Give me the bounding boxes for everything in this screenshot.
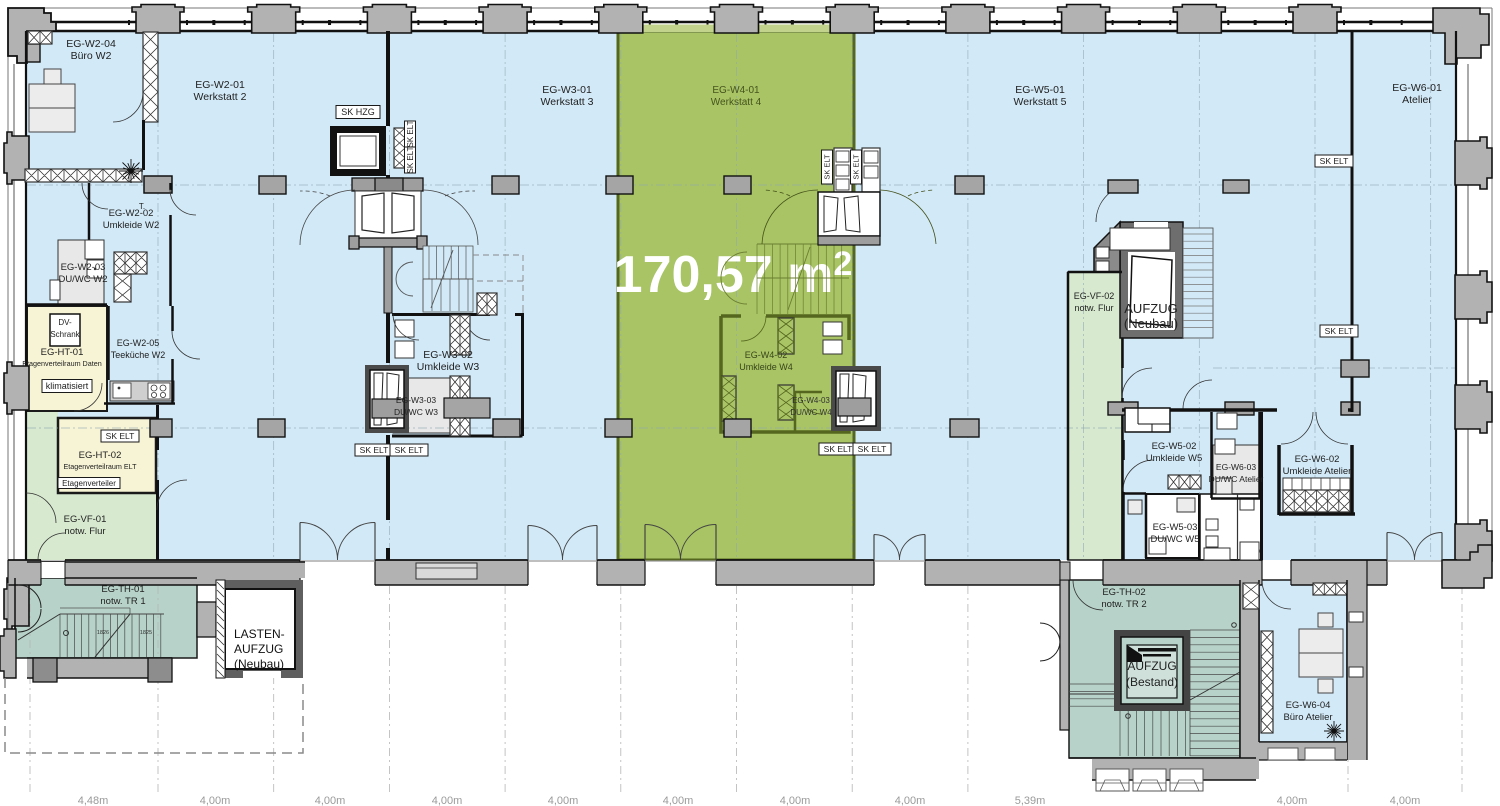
svg-text:SK ELT: SK ELT <box>852 154 861 180</box>
svg-text:SK ELT: SK ELT <box>858 444 887 454</box>
svg-text:EG-W6-01: EG-W6-01 <box>1392 82 1442 94</box>
svg-text:EG-W6-04: EG-W6-04 <box>1286 700 1331 711</box>
svg-text:EG-HT-01: EG-HT-01 <box>41 347 84 358</box>
svg-text:Umkleide W5: Umkleide W5 <box>1146 453 1203 464</box>
svg-text:SK ELT: SK ELT <box>824 444 853 454</box>
svg-text:(Bestand): (Bestand) <box>1126 675 1178 689</box>
svg-text:SK HZG: SK HZG <box>341 107 375 117</box>
svg-text:EG-W2-04: EG-W2-04 <box>66 38 116 50</box>
svg-text:notw. TR 1: notw. TR 1 <box>100 596 145 607</box>
svg-text:EG-W4-02: EG-W4-02 <box>745 350 788 360</box>
svg-text:4,00m: 4,00m <box>663 795 694 806</box>
svg-text:DU/WC W4: DU/WC W4 <box>790 408 832 417</box>
svg-text:AUFZUG: AUFZUG <box>1127 659 1176 673</box>
svg-text:klimatisiert: klimatisiert <box>46 381 89 391</box>
svg-text:SK ELT: SK ELT <box>823 154 832 180</box>
svg-text:4,00m: 4,00m <box>895 795 926 806</box>
svg-text:EG-W2-05: EG-W2-05 <box>117 338 160 348</box>
svg-text:EG-HT-02: EG-HT-02 <box>79 450 122 461</box>
svg-text:Büro W2: Büro W2 <box>71 50 112 62</box>
svg-text:DU/WC Atelier: DU/WC Atelier <box>1209 474 1264 484</box>
svg-text:Umkleide Atelier: Umkleide Atelier <box>1283 466 1352 477</box>
svg-text:Etagenverteilraum ELT: Etagenverteilraum ELT <box>64 462 138 471</box>
svg-text:EG-VF-01: EG-VF-01 <box>64 514 107 525</box>
svg-text:Etagenverteilraum Daten: Etagenverteilraum Daten <box>22 359 102 368</box>
svg-text:Werkstatt 3: Werkstatt 3 <box>541 96 594 108</box>
svg-text:1825: 1825 <box>140 630 152 636</box>
svg-text:DU/WC W2: DU/WC W2 <box>58 274 107 285</box>
svg-text:SK ELT: SK ELT <box>406 120 415 147</box>
svg-text:EG-W3-02: EG-W3-02 <box>423 349 473 361</box>
svg-text:EG-W3-03: EG-W3-03 <box>396 395 436 405</box>
svg-text:EG-W2-01: EG-W2-01 <box>195 79 245 91</box>
svg-text:4,00m: 4,00m <box>780 795 811 806</box>
svg-text:notw. Flur: notw. Flur <box>64 526 105 537</box>
svg-text:4,00m: 4,00m <box>315 795 346 806</box>
svg-text:EG-W5-03: EG-W5-03 <box>1153 522 1198 533</box>
svg-text:EG-W5-01: EG-W5-01 <box>1015 84 1065 96</box>
svg-text:AUFZUG: AUFZUG <box>1124 301 1177 316</box>
svg-text:Werkstatt 2: Werkstatt 2 <box>194 91 247 103</box>
svg-text:DV-: DV- <box>58 318 72 327</box>
svg-text:EG-W4-03: EG-W4-03 <box>792 396 830 405</box>
svg-text:EG-W2-02: EG-W2-02 <box>109 208 154 219</box>
svg-text:DU/WC W5: DU/WC W5 <box>1150 534 1199 545</box>
svg-text:SK ELT: SK ELT <box>360 445 389 455</box>
svg-text:SK ELT: SK ELT <box>395 445 424 455</box>
svg-text:Atelier: Atelier <box>1402 94 1432 106</box>
svg-text:Büro Atelier: Büro Atelier <box>1283 712 1332 723</box>
svg-text:170,57 m2: 170,57 m2 <box>614 245 853 304</box>
svg-text:4,00m: 4,00m <box>200 795 231 806</box>
svg-text:SK ELT: SK ELT <box>106 431 135 441</box>
svg-text:SK ELT: SK ELT <box>1320 156 1349 166</box>
svg-text:(Neubau): (Neubau) <box>1124 316 1178 331</box>
svg-text:EG-W5-02: EG-W5-02 <box>1152 441 1197 452</box>
svg-text:Werkstatt 5: Werkstatt 5 <box>1014 96 1067 108</box>
svg-text:AUFZUG: AUFZUG <box>234 642 283 656</box>
svg-text:5,39m: 5,39m <box>1015 795 1046 806</box>
svg-text:EG-TH-02: EG-TH-02 <box>1102 587 1145 598</box>
svg-text:EG-TH-01: EG-TH-01 <box>101 584 144 595</box>
svg-text:EG-W6-03: EG-W6-03 <box>1216 462 1256 472</box>
svg-text:SK ELT: SK ELT <box>1325 326 1354 336</box>
svg-text:4,00m: 4,00m <box>1277 795 1308 806</box>
svg-text:4,00m: 4,00m <box>432 795 463 806</box>
svg-text:(Neubau): (Neubau) <box>234 657 284 671</box>
svg-text:EG-W3-01: EG-W3-01 <box>542 84 592 96</box>
svg-text:Umkleide W3: Umkleide W3 <box>417 361 480 373</box>
svg-text:EG-W2-03: EG-W2-03 <box>61 262 106 273</box>
svg-text:DU/WC W3: DU/WC W3 <box>394 407 438 417</box>
svg-text:4,00m: 4,00m <box>1390 795 1421 806</box>
svg-text:notw. TR 2: notw. TR 2 <box>1101 599 1146 610</box>
svg-text:Umkleide W2: Umkleide W2 <box>103 220 160 231</box>
svg-text:notw. Flur: notw. Flur <box>1074 303 1113 313</box>
svg-text:1826: 1826 <box>97 630 109 636</box>
svg-text:SK ELT: SK ELT <box>406 146 415 173</box>
svg-text:LASTEN-: LASTEN- <box>234 627 285 641</box>
svg-text:EG-W6-02: EG-W6-02 <box>1295 454 1340 465</box>
svg-text:Teeküche W2: Teeküche W2 <box>111 350 166 360</box>
svg-text:EG-W4-01: EG-W4-01 <box>712 85 760 96</box>
svg-text:Etagenverteiler: Etagenverteiler <box>62 479 116 488</box>
svg-text:4,48m: 4,48m <box>78 795 109 806</box>
svg-text:EG-VF-02: EG-VF-02 <box>1074 291 1115 301</box>
svg-text:Umkleide W4: Umkleide W4 <box>739 362 793 372</box>
svg-text:Schrank: Schrank <box>50 330 80 339</box>
svg-text:4,00m: 4,00m <box>548 795 579 806</box>
svg-text:Werkstatt 4: Werkstatt 4 <box>711 97 762 108</box>
